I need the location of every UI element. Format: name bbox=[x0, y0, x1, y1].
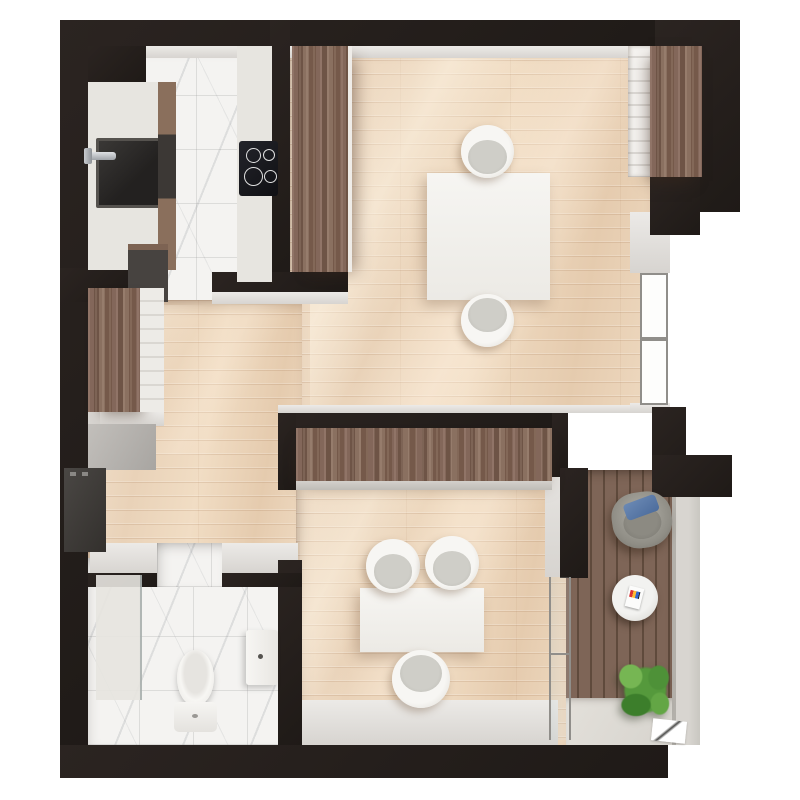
bedroom-wardrobe bbox=[296, 428, 552, 481]
floor-plan-canvas bbox=[0, 0, 800, 800]
wall-bathroom-north bbox=[222, 573, 302, 587]
wall-ledge bbox=[278, 405, 652, 413]
toilet-tank bbox=[174, 702, 217, 732]
toilet bbox=[177, 650, 214, 706]
wall-segment bbox=[88, 46, 146, 82]
wall-bedroom-divider bbox=[278, 413, 568, 428]
balcony-parapet bbox=[672, 488, 700, 745]
desk-chair-northeast bbox=[425, 536, 479, 590]
wall-balcony-corner bbox=[560, 468, 588, 578]
pantry-cabinet bbox=[292, 46, 352, 272]
desk-table bbox=[360, 588, 484, 652]
burner-icon bbox=[244, 167, 263, 186]
hallway-cabinet bbox=[64, 468, 106, 552]
wardrobe-northeast bbox=[650, 46, 702, 177]
wall-segment bbox=[278, 413, 296, 490]
shower-tray bbox=[96, 575, 142, 700]
hallway-wardrobe-side bbox=[140, 288, 164, 412]
blue-pillow bbox=[622, 494, 660, 522]
bathroom-doorway-floor bbox=[157, 543, 223, 587]
burner-icon bbox=[246, 148, 261, 163]
wall-face bbox=[302, 700, 558, 745]
wall-segment bbox=[212, 272, 348, 292]
kitchen-sink bbox=[96, 138, 164, 208]
storage-box bbox=[88, 424, 156, 470]
balcony-side-table bbox=[612, 575, 658, 621]
faucet-icon bbox=[86, 152, 116, 160]
desk-chair-south bbox=[392, 650, 450, 708]
balcony-glass-door bbox=[549, 577, 571, 740]
desk-chair-northwest bbox=[366, 539, 420, 593]
wall-segment bbox=[650, 177, 700, 235]
kitchen-cabinet-strip bbox=[158, 82, 176, 270]
wall-segment-west bbox=[60, 20, 88, 778]
potted-plant bbox=[611, 656, 677, 724]
burner-icon bbox=[264, 170, 277, 183]
wall-ledge bbox=[212, 292, 348, 304]
burner-icon bbox=[263, 149, 275, 161]
hallway-wardrobe bbox=[88, 288, 140, 412]
wall-segment-north bbox=[60, 20, 690, 46]
dining-chair-north bbox=[461, 125, 514, 178]
dining-table bbox=[427, 173, 550, 300]
wall-bathroom-east bbox=[278, 560, 302, 745]
dining-chair-south bbox=[461, 294, 514, 347]
wall-segment-south bbox=[60, 745, 668, 778]
washbasin bbox=[246, 630, 278, 685]
window-east bbox=[640, 273, 668, 405]
wardrobe-ledge bbox=[296, 481, 552, 490]
magazine bbox=[625, 585, 645, 609]
door-threshold bbox=[651, 718, 687, 743]
wall-face bbox=[146, 46, 237, 58]
cooktop bbox=[239, 141, 278, 196]
shelf-unit bbox=[628, 46, 650, 177]
wall-balcony-north bbox=[652, 455, 732, 497]
